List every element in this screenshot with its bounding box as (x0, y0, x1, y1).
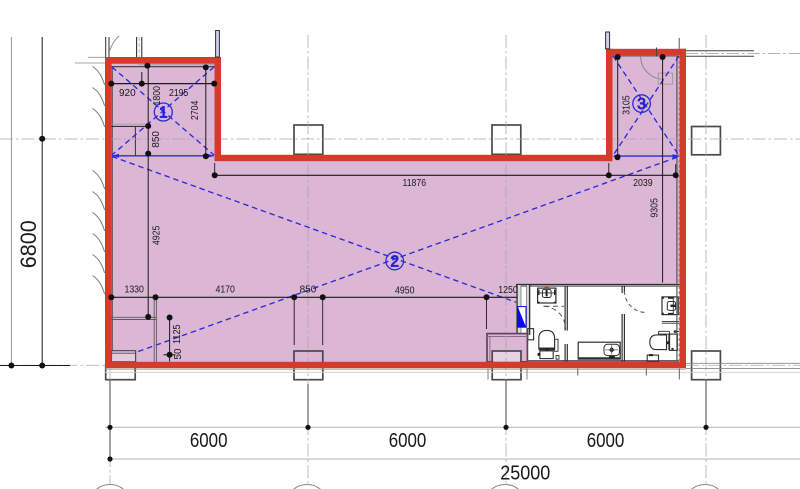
svg-text:11876: 11876 (403, 178, 427, 189)
svg-text:6000: 6000 (587, 430, 625, 452)
svg-text:1125: 1125 (172, 324, 183, 344)
svg-text:3105: 3105 (621, 95, 632, 115)
svg-text:4950: 4950 (395, 286, 415, 297)
svg-text:3: 3 (637, 96, 646, 113)
svg-text:4925: 4925 (152, 225, 163, 245)
svg-text:2704: 2704 (190, 100, 201, 120)
svg-text:6000: 6000 (190, 430, 228, 452)
svg-text:850: 850 (151, 131, 162, 148)
svg-text:1: 1 (159, 105, 168, 122)
svg-text:4170: 4170 (215, 284, 235, 295)
svg-text:6800: 6800 (16, 220, 41, 268)
svg-text:6000: 6000 (389, 430, 427, 452)
svg-text:25000: 25000 (500, 462, 550, 484)
svg-text:1800: 1800 (152, 86, 163, 106)
svg-text:850: 850 (300, 285, 317, 296)
svg-text:1250: 1250 (498, 285, 518, 296)
svg-text:2039: 2039 (633, 178, 653, 189)
svg-text:920: 920 (119, 88, 136, 99)
svg-text:2: 2 (390, 254, 399, 271)
svg-text:9305: 9305 (650, 198, 661, 218)
svg-text:50: 50 (173, 348, 184, 360)
svg-text:2195: 2195 (169, 88, 189, 99)
svg-text:1330: 1330 (124, 284, 144, 295)
